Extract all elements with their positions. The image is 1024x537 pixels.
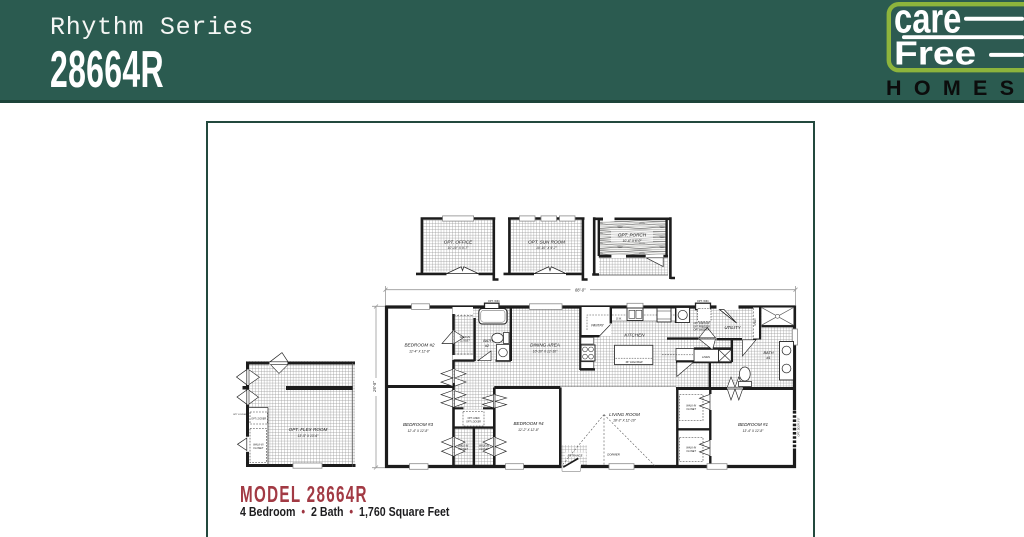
- svg-text:SHELF: SHELF: [754, 318, 757, 326]
- svg-text:OPT LINEN: OPT LINEN: [467, 418, 479, 420]
- svg-text:LIVING ROOM: LIVING ROOM: [609, 412, 640, 417]
- svg-text:KITCHEN: KITCHEN: [624, 333, 645, 338]
- svg-text:OPT. OFFICE: OPT. OFFICE: [444, 240, 473, 245]
- svg-text:LINEN: LINEN: [702, 355, 710, 359]
- svg-text:DORMER: DORMER: [607, 452, 619, 456]
- svg-text:10'-10" X 9'-7": 10'-10" X 9'-7": [448, 246, 470, 250]
- svg-text:10'-10" X 12'-10": 10'-10" X 12'-10": [533, 350, 558, 354]
- svg-text:CLOSET: CLOSET: [686, 408, 696, 411]
- svg-text:BEDROOM #1: BEDROOM #1: [738, 422, 769, 427]
- svg-text:OPT. SUN ROOM: OPT. SUN ROOM: [528, 240, 565, 245]
- svg-text:ENTRANCE: ENTRANCE: [568, 453, 583, 457]
- svg-text:13'-5" X 13'-6": 13'-5" X 13'-6": [298, 434, 320, 438]
- svg-text:OPT WASHER: OPT WASHER: [693, 329, 709, 332]
- svg-text:12'-2" X 12'-8": 12'-2" X 12'-8": [518, 428, 540, 432]
- svg-text:OPT. FLEX ROOM: OPT. FLEX ROOM: [289, 427, 328, 432]
- svg-text:12'-4" X 12'-8": 12'-4" X 12'-8": [408, 429, 430, 433]
- svg-text:18'-3" X 12'-10": 18'-3" X 12'-10": [613, 419, 636, 423]
- svg-text:CLOSET: CLOSET: [686, 450, 696, 453]
- svg-text:DINING AREA: DINING AREA: [530, 343, 560, 348]
- svg-text:10'-6" X 6'-0": 10'-6" X 6'-0": [623, 239, 643, 243]
- svg-text:BEDROOM #4: BEDROOM #4: [513, 421, 544, 426]
- svg-text:CLOSET: CLOSET: [459, 448, 469, 451]
- svg-text:OPT. WIN.: OPT. WIN.: [488, 299, 501, 303]
- svg-text:26'-8": 26'-8": [372, 381, 377, 393]
- svg-text:OPT. PORCH: OPT. PORCH: [618, 233, 647, 238]
- svg-text:CLOSET: CLOSET: [253, 447, 263, 450]
- svg-text:BEDROOM #3: BEDROOM #3: [403, 422, 434, 427]
- svg-text:CLOSET: CLOSET: [479, 448, 489, 451]
- svg-text:UTILITY: UTILITY: [724, 325, 741, 330]
- svg-text:OPT LOUVER: OPT LOUVER: [233, 414, 248, 416]
- svg-text:#1: #1: [766, 355, 770, 360]
- svg-text:#2: #2: [485, 344, 489, 348]
- svg-text:88'-0": 88'-0": [575, 288, 586, 293]
- svg-text:BATH: BATH: [483, 339, 493, 343]
- svg-text:D.W.: D.W.: [616, 318, 622, 321]
- svg-text:13'-4" X 12'-8": 13'-4" X 12'-8": [743, 429, 765, 433]
- svg-text:10'-10" X 9'-7": 10'-10" X 9'-7": [536, 246, 558, 250]
- svg-text:BEDROOM #2: BEDROOM #2: [404, 343, 435, 348]
- svg-text:OPT LOCKER: OPT LOCKER: [466, 421, 481, 423]
- svg-text:OPT. DOOR 3'-0": OPT. DOOR 3'-0": [797, 418, 800, 437]
- svg-text:OPT LOCKER: OPT LOCKER: [251, 419, 266, 421]
- svg-text:OPT. WIN.: OPT. WIN.: [697, 299, 710, 303]
- svg-text:PANTRY: PANTRY: [591, 324, 604, 328]
- svg-text:12'-4" X 12'-8": 12'-4" X 12'-8": [409, 350, 431, 354]
- svg-text:36" HIGH BAR: 36" HIGH BAR: [625, 360, 642, 364]
- svg-text:CLOSET: CLOSET: [460, 340, 470, 343]
